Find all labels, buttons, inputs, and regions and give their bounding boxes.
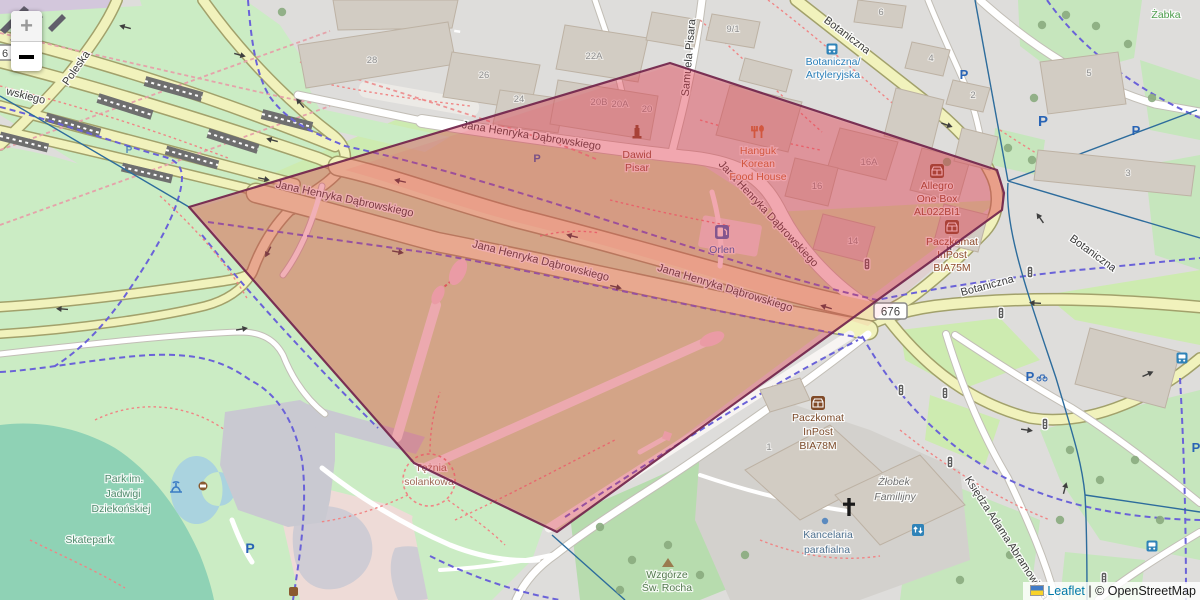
svg-text:22A: 22A	[586, 51, 604, 62]
svg-text:5: 5	[1086, 68, 1091, 79]
svg-text:P: P	[1132, 123, 1141, 138]
svg-text:WzgórzeŚw. Rocha: WzgórzeŚw. Rocha	[642, 569, 692, 594]
svg-text:P: P	[126, 145, 133, 156]
svg-text:Botaniczna/Artyleryjska: Botaniczna/Artyleryjska	[806, 56, 861, 81]
svg-text:P: P	[960, 67, 969, 82]
svg-text:24: 24	[514, 94, 525, 105]
svg-text:P: P	[1038, 113, 1048, 130]
svg-text:1: 1	[766, 442, 771, 453]
svg-text:6: 6	[878, 7, 883, 18]
svg-text:9/1: 9/1	[726, 24, 739, 35]
svg-text:P: P	[245, 540, 254, 556]
svg-text:28: 28	[367, 55, 378, 66]
svg-text:P: P	[1026, 369, 1035, 384]
svg-text:4: 4	[928, 53, 933, 64]
svg-text:P: P	[1192, 440, 1200, 455]
svg-text:Skatepark: Skatepark	[65, 534, 113, 546]
svg-text:3: 3	[1125, 168, 1130, 179]
svg-text:Żabka: Żabka	[1151, 8, 1180, 21]
svg-text:6: 6	[2, 48, 8, 60]
svg-text:26: 26	[479, 70, 490, 81]
svg-text:2: 2	[970, 90, 975, 101]
